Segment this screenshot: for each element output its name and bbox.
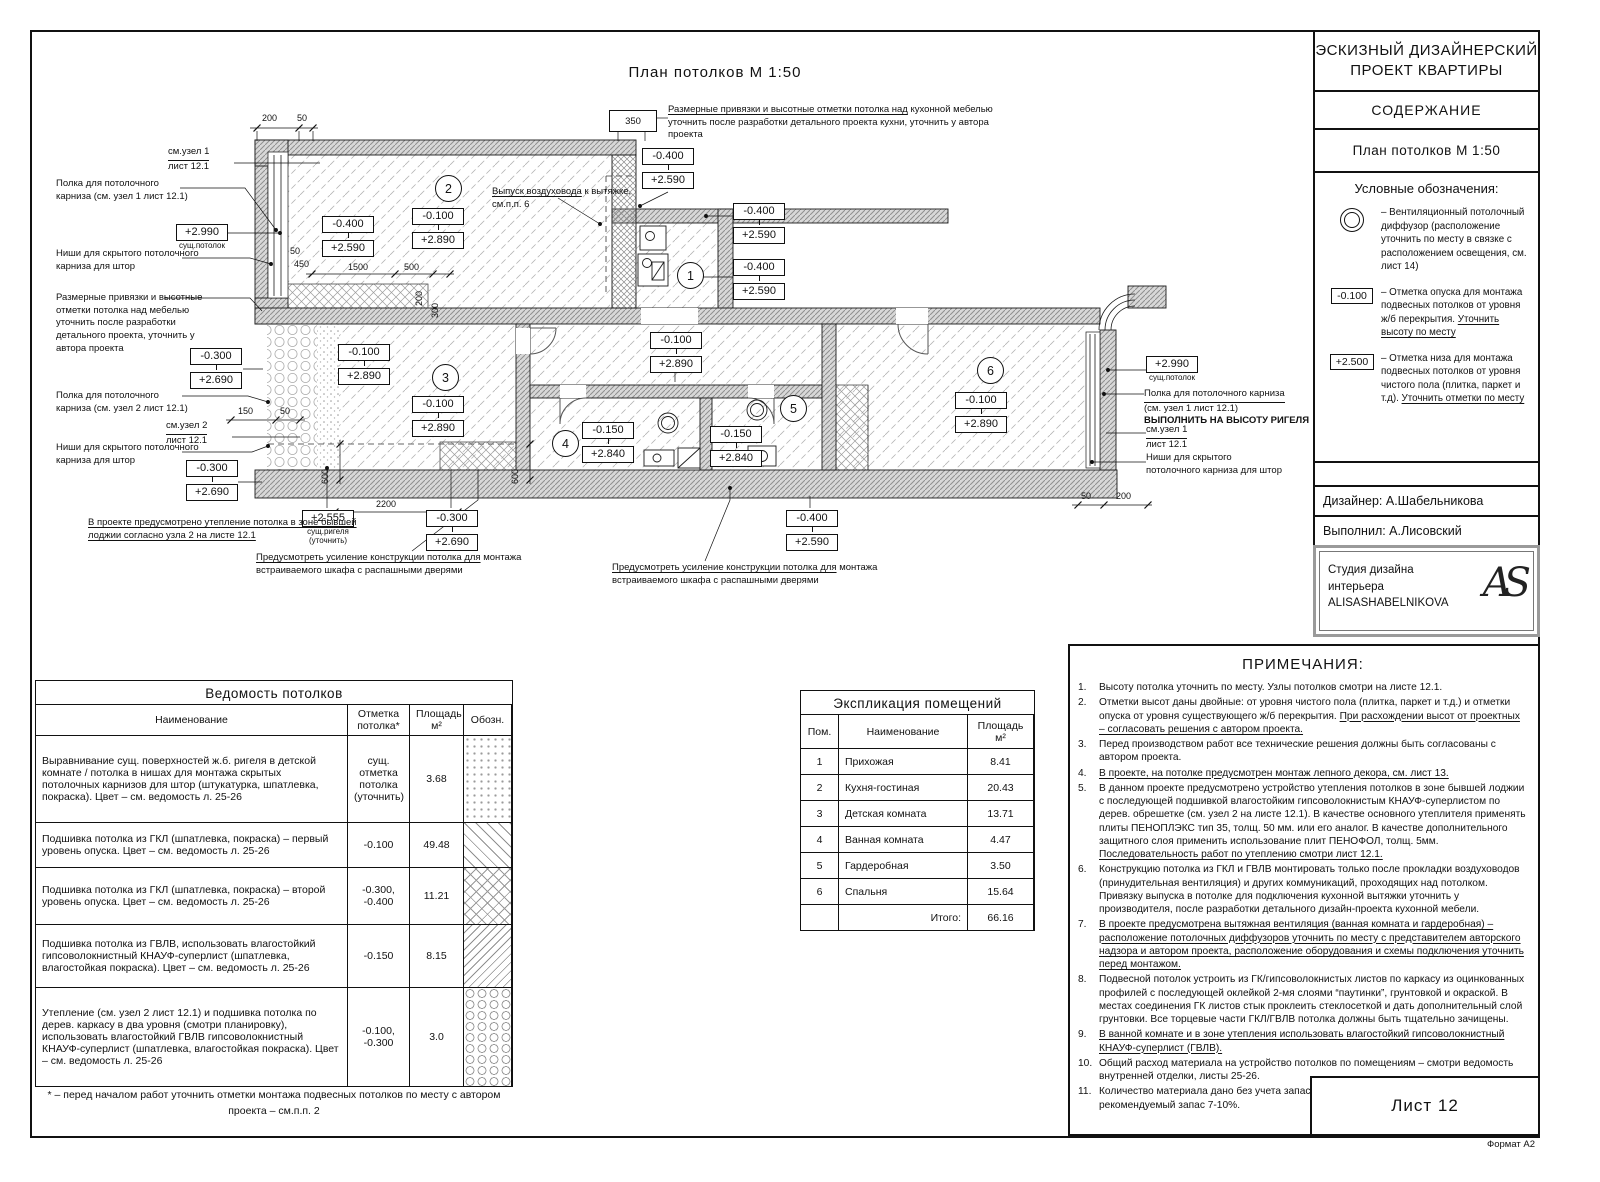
hatch-swatch — [464, 868, 511, 924]
executor-name: Выполнил: А.Лисовский — [1323, 524, 1462, 538]
col-area: Площадь м² — [410, 705, 464, 736]
dim-350-box: 350 — [609, 110, 657, 132]
note-item: 8.Подвесной потолок устроить из ГК/гипсо… — [1078, 973, 1528, 1026]
contents-block: СОДЕРЖАНИЕ — [1313, 90, 1540, 130]
plan-title: План потолков М 1:50 — [565, 64, 865, 81]
ceiling-schedule-footnote: * – перед началом работ уточнить отметки… — [35, 1088, 513, 1120]
executor-block: Выполнил: А.Лисовский — [1313, 515, 1540, 547]
dim-50: 50 — [1081, 491, 1091, 501]
table-row: 6 Спальня 15.64 — [801, 879, 1034, 905]
dim-1500: 1500 — [348, 262, 368, 272]
table-header-row: Наименование Отметка потолка* Площадь м²… — [36, 705, 512, 736]
drawing-sheet: План потолков М 1:50 1 2 3 4 5 6 -0.400 … — [0, 0, 1600, 1182]
elevation-pair: -0.100 +2.890 — [412, 206, 464, 249]
elevation-pair: -0.400 +2.590 — [733, 257, 785, 300]
furniture-dims-note: Размерные привязки и высотные отметки по… — [56, 292, 211, 356]
legend-item-bottom-mark: +2.500 – Отметка низа для монтажа подвес… — [1323, 352, 1530, 406]
table-row: 3 Детская комната 13.71 — [801, 801, 1034, 827]
table-row: Подшивка потолка из ГКЛ (шпатлевка, покр… — [36, 823, 512, 868]
note-item: 5.В данном проекте предусмотрено устройс… — [1078, 782, 1528, 862]
elevation-existing-ceiling: +2.990 сущ.потолок — [1146, 354, 1198, 382]
room-tag-2: 2 — [435, 175, 462, 202]
elevation-pair: -0.100 +2.890 — [955, 390, 1007, 433]
project-title-block: ЭСКИЗНЫЙ ДИЗАЙНЕРСКИЙ ПРОЕКТ КВАРТИРЫ — [1313, 30, 1540, 92]
see-node1-callout: см.узел 1 лист 12.1 — [168, 146, 234, 173]
dim-200: 200 — [262, 113, 277, 123]
dim-600: 600 — [320, 469, 330, 484]
col-room-area: Площадь м² — [968, 715, 1034, 749]
table-row: Подшивка потолка из ГВЛВ, использовать в… — [36, 925, 512, 988]
curtain-niche-note: Ниши для скрытого потолочного карниза дл… — [56, 442, 246, 467]
note-item: 1.Высоту потолка уточнить по месту. Узлы… — [1078, 681, 1528, 694]
col-name: Наименование — [36, 705, 348, 736]
note-item: 4.В проекте, на потолке предусмотрен мон… — [1078, 767, 1528, 780]
elevation-pair: -0.300 +2.690 — [426, 508, 478, 551]
designer-block: Дизайнер: А.Шабельникова — [1313, 485, 1540, 517]
note-item: 7.В проекте предусмотрена вытяжная венти… — [1078, 918, 1528, 971]
table-row: Подшивка потолка из ГКЛ (шпатлевка, покр… — [36, 868, 512, 925]
hatch-swatch — [464, 925, 511, 987]
notes-panel: ПРИМЕЧАНИЯ: 1.Высоту потолка уточнить по… — [1068, 644, 1540, 1136]
ceiling-schedule-title: Ведомость потолков — [36, 681, 512, 705]
format-label: Формат А2 — [1487, 1139, 1535, 1150]
room-tag-1: 1 — [677, 262, 704, 289]
col-room-num: Пом. — [801, 715, 839, 749]
see-node1-callout: см.узел 1 лист 12.1 — [1146, 424, 1212, 451]
room-tag-4: 4 — [552, 430, 579, 457]
elevation-pair: -0.400 +2.590 — [733, 201, 785, 244]
drop-mark-sample: -0.100 — [1331, 288, 1373, 304]
notes-title: ПРИМЕЧАНИЯ: — [1078, 656, 1528, 673]
legend-item-diffuser: – Вентиляционный потолочный диффузор (ра… — [1323, 206, 1530, 274]
sheet-title-block: План потолков М 1:50 — [1313, 128, 1540, 173]
table-total-row: Итого: 66.16 — [801, 905, 1034, 931]
dim-50: 50 — [297, 113, 307, 123]
legend-block: Условные обозначения: – Вентиляционный п… — [1313, 171, 1540, 463]
room-tag-6: 6 — [977, 357, 1004, 384]
duct-outlet-note: Выпуск воздуховода к вытяжке, см.п.п. 6 — [492, 186, 660, 211]
rooms-explication: Экспликация помещений Пом. Наименование … — [800, 690, 1035, 931]
sheet-title: План потолков М 1:50 — [1353, 143, 1501, 158]
legend-title: Условные обозначения: — [1323, 181, 1530, 196]
ceiling-schedule: Ведомость потолков Наименование Отметка … — [35, 680, 513, 1087]
hatch-swatch — [464, 988, 511, 1086]
table-row: Выравнивание сущ. поверхностей ж.б. риге… — [36, 736, 512, 823]
sheet-number: Лист 12 — [1310, 1076, 1540, 1136]
designer-name: Дизайнер: А.Шабельникова — [1323, 494, 1483, 508]
elevation-pair: -0.100 +2.890 — [338, 342, 390, 385]
wardrobe-reinforce-note: Предусмотреть усиление конструкции потол… — [256, 552, 566, 577]
dim-200: 200 — [414, 291, 424, 306]
hatch-swatch — [464, 823, 511, 867]
dim-200: 200 — [1116, 491, 1131, 501]
empty-block — [1313, 461, 1540, 487]
col-room-name: Наименование — [839, 715, 968, 749]
col-symbol: Обозн. — [464, 705, 512, 736]
dim-50: 50 — [290, 246, 300, 256]
insulation-note: В проекте предусмотрено утепление потолк… — [88, 517, 364, 542]
kitchen-dims-note: Размерные привязки и высотные отметки по… — [668, 104, 1013, 142]
dim-600: 600 — [510, 469, 520, 484]
col-mark: Отметка потолка* — [348, 705, 410, 736]
room-tag-5: 5 — [780, 395, 807, 422]
table-row: 1 Прихожая 8.41 — [801, 749, 1034, 775]
table-row: 2 Кухня-гостиная 20.43 — [801, 775, 1034, 801]
room-tag-3: 3 — [432, 364, 459, 391]
elevation-pair: -0.400 +2.590 — [322, 214, 374, 257]
elevation-pair: -0.400 +2.590 — [786, 508, 838, 551]
table-row: 4 Ванная комната 4.47 — [801, 827, 1034, 853]
elevation-pair: -0.100 +2.890 — [650, 330, 702, 373]
table-header-row: Пом. Наименование Площадь м² — [801, 715, 1034, 749]
elevation-existing-ceiling: +2.990 сущ.потолок — [176, 222, 228, 250]
cornice-shelf-note-1: Полка для потолочного карниза (см. узел … — [56, 178, 236, 203]
dim-2200: 2200 — [376, 499, 396, 509]
curtain-niche-note-right: Ниши для скрытого потолочного карниза дл… — [1146, 452, 1321, 477]
studio-logo: AS — [1483, 560, 1523, 606]
cornice-shelf-note-2: Полка для потолочного карниза (см. узел … — [56, 390, 246, 415]
table-row: Утепление (см. узел 2 лист 12.1) и подши… — [36, 988, 512, 1087]
project-title: ЭСКИЗНЫЙ ДИЗАЙНЕРСКИЙ ПРОЕКТ КВАРТИРЫ — [1315, 41, 1537, 82]
dim-50: 50 — [280, 406, 290, 416]
curtain-niche-note: Ниши для скрытого потолочного карниза дл… — [56, 248, 236, 273]
note-item: 2.Отметки высот даны двойные: от уровня … — [1078, 696, 1528, 736]
note-item: 9.В ванной комнате и в зоне утепления ис… — [1078, 1028, 1528, 1055]
elevation-pair: -0.100 +2.890 — [412, 394, 464, 437]
studio-block: Студия дизайна интерьера ALISASHABELNIKO… — [1313, 545, 1540, 637]
elevation-pair: -0.400 +2.590 — [642, 146, 694, 189]
dim-150: 150 — [238, 406, 253, 416]
rooms-explication-title: Экспликация помещений — [801, 691, 1034, 715]
cornice-shelf-note-right: Полка для потолочного карниза (см. узел … — [1144, 388, 1312, 428]
wardrobe-reinforce-note: Предусмотреть усиление конструкции потол… — [612, 562, 932, 587]
note-item: 3.Перед производством работ все техничес… — [1078, 738, 1528, 765]
diffuser-icon — [1340, 208, 1364, 232]
dim-500: 500 — [404, 262, 419, 272]
elevation-pair: -0.150 +2.840 — [710, 424, 762, 467]
contents-label: СОДЕРЖАНИЕ — [1371, 102, 1481, 118]
dim-300: 300 — [430, 303, 440, 318]
elevation-pair: -0.150 +2.840 — [582, 420, 634, 463]
table-row: 5 Гардеробная 3.50 — [801, 853, 1034, 879]
bottom-mark-sample: +2.500 — [1330, 354, 1374, 370]
hatch-swatch — [464, 736, 511, 822]
legend-item-drop-mark: -0.100 – Отметка опуска для монтажа подв… — [1323, 286, 1530, 340]
dim-450: 450 — [294, 259, 309, 269]
note-item: 6.Конструкцию потолка из ГКЛ и ГВЛВ монт… — [1078, 863, 1528, 916]
